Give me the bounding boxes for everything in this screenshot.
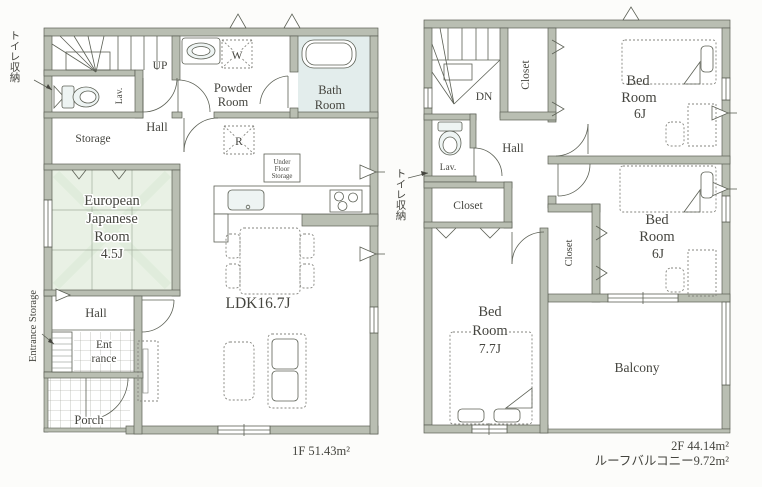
stove-icon: [330, 190, 362, 212]
entrance-storage-shelf: [52, 332, 72, 372]
floorplan-2f: DN Closet Bed Room 6J Lav. Hall トイレ収納 Cl…: [395, 7, 738, 468]
ldk-label: LDK16.7J: [225, 295, 290, 312]
svg-text:Storage: Storage: [272, 173, 293, 180]
entrance-label: Ent: [96, 339, 113, 351]
closet-right-label: Closet: [564, 240, 575, 267]
hall-label: Hall: [502, 141, 524, 155]
svg-text:Japanese: Japanese: [86, 211, 138, 227]
floor1-area-label: 1F 51.43m²: [292, 444, 350, 458]
washer-label: W: [232, 50, 243, 62]
fridge-label: R: [235, 136, 243, 148]
floor2-area-label: 2F 44.14m²: [671, 439, 729, 453]
svg-text:Room: Room: [94, 229, 130, 245]
hall-upper-label: Hall: [146, 120, 168, 134]
window: [472, 423, 507, 435]
porch-label: Porch: [74, 413, 104, 427]
pillow-icon: [701, 172, 713, 198]
entrance-storage-label: Entrance Storage: [28, 290, 39, 362]
storage-label: Storage: [75, 133, 110, 145]
hall-lower-label: Hall: [85, 306, 107, 320]
svg-text:Room: Room: [621, 90, 657, 106]
bedroom2-label: Bed: [645, 212, 669, 228]
roof-balcony-area-label: ルーフバルコニー9.72m²: [595, 454, 730, 468]
pillow-icon: [701, 46, 713, 72]
window: [722, 196, 730, 222]
toilet-storage-label: トイレ収納: [395, 168, 406, 221]
svg-text:rance: rance: [92, 353, 117, 365]
dn-label: DN: [476, 91, 493, 103]
toilet-icon: [438, 122, 462, 155]
pillow-icon: [494, 409, 520, 422]
window: [722, 78, 730, 100]
powder-room-label: Powder: [214, 81, 253, 95]
toilet-storage-label: トイレ収納: [9, 30, 20, 83]
bedroom3-label: Bed: [478, 304, 502, 320]
pillow-icon: [458, 409, 484, 422]
window: [370, 307, 378, 333]
closet-top-label: Closet: [520, 60, 532, 90]
closet-mid-label: Closet: [453, 200, 483, 212]
balcony-railing: [722, 302, 730, 385]
window: [44, 200, 52, 247]
floorplan-page: トイレ収納 UP Lav. Hall Storage Powder Room W…: [0, 0, 762, 487]
entrance-tiles: [74, 332, 135, 372]
svg-text:6J: 6J: [634, 106, 646, 121]
under-floor-storage-label: Under: [274, 159, 292, 166]
window: [218, 424, 270, 436]
window: [424, 88, 432, 108]
svg-text:6J: 6J: [652, 246, 664, 261]
balcony-label: Balcony: [615, 360, 660, 375]
vent-icon: [623, 7, 639, 20]
vent-icon: [284, 14, 300, 28]
bedroom1-label: Bed: [626, 73, 650, 89]
svg-text:Room: Room: [315, 98, 346, 112]
floorplan-1f: トイレ収納 UP Lav. Hall Storage Powder Room W…: [9, 14, 386, 458]
lav-label: Lav.: [115, 88, 125, 105]
up-label: UP: [153, 60, 168, 72]
sink-icon: [182, 38, 220, 64]
svg-text:Room: Room: [472, 323, 508, 339]
svg-text:Room: Room: [639, 229, 675, 245]
svg-text:7.7J: 7.7J: [479, 341, 501, 356]
tatami-room-label: European: [84, 193, 140, 209]
lav-label: Lav.: [440, 163, 457, 173]
vent-icon: [230, 14, 246, 28]
svg-text:4.5J: 4.5J: [101, 246, 123, 261]
svg-text:Room: Room: [218, 95, 249, 109]
floorplan-drawing: トイレ収納 UP Lav. Hall Storage Powder Room W…: [0, 0, 762, 487]
bathtub-icon: [302, 40, 356, 68]
bath-room-label: Bath: [318, 83, 342, 97]
svg-text:Floor: Floor: [275, 166, 290, 173]
window: [608, 292, 678, 304]
